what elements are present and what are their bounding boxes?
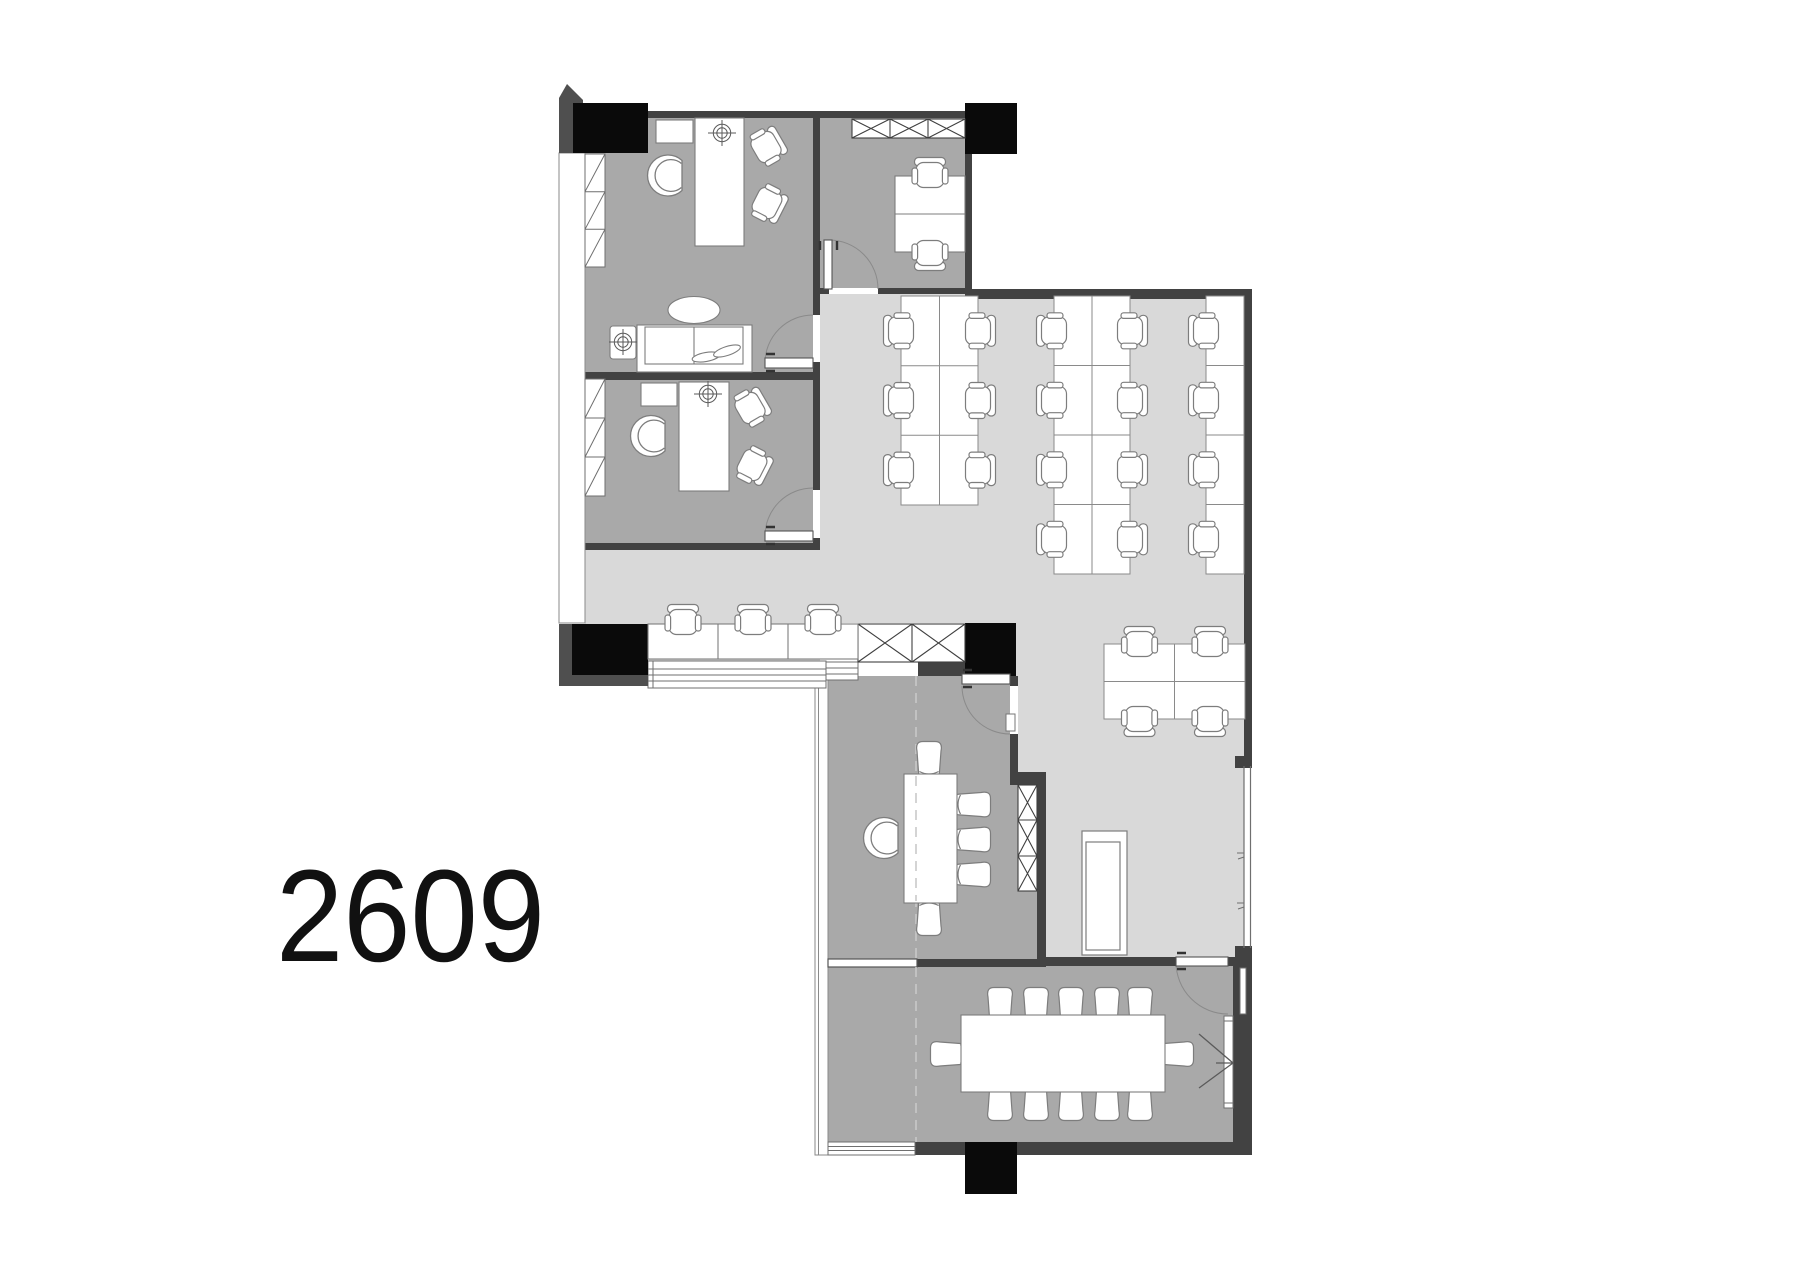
svg-text:2609: 2609 xyxy=(276,842,545,989)
